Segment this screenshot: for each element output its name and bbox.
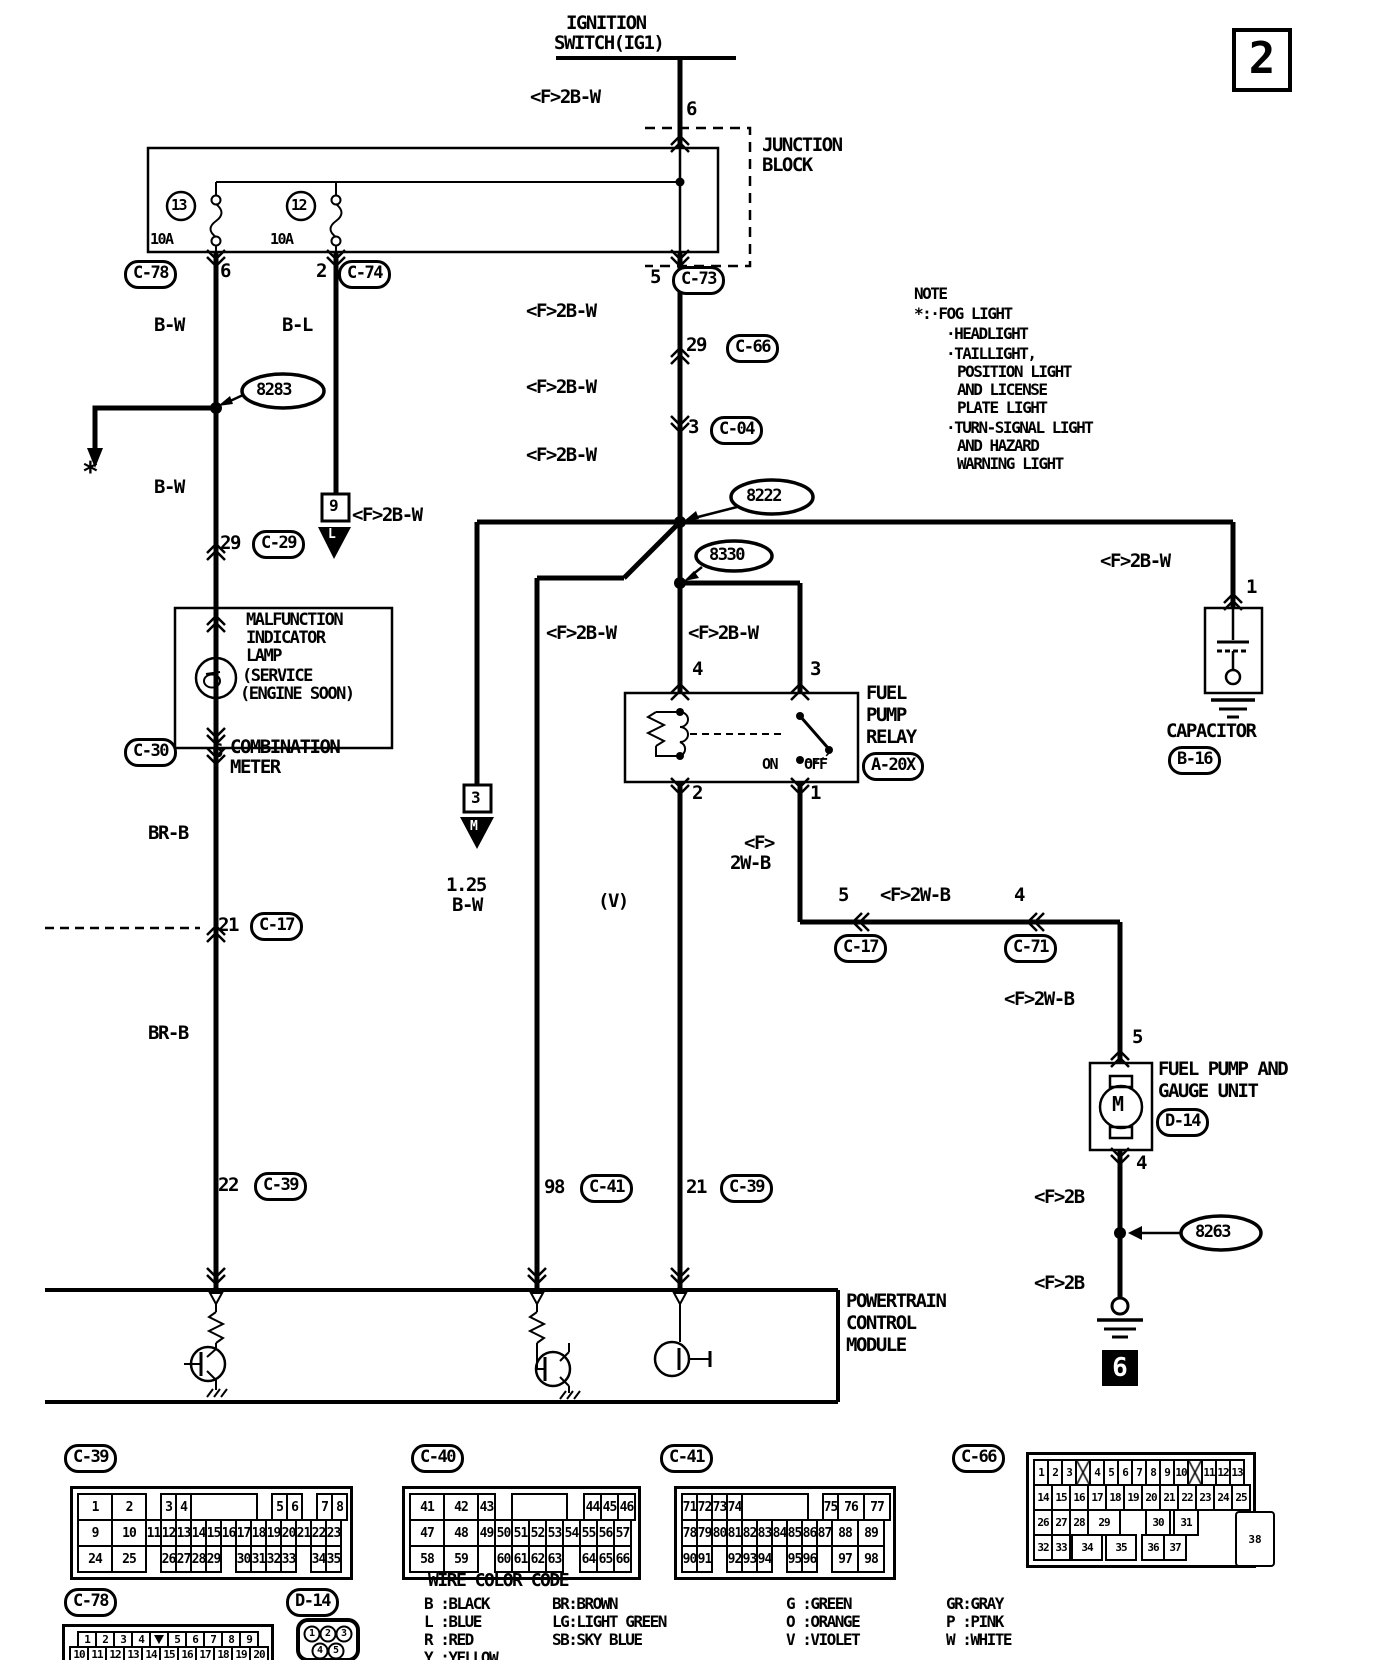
- connector-pill-c71: C-71: [1004, 934, 1057, 963]
- label-pin6_top: 6: [686, 100, 696, 119]
- pin-cell: [190, 1493, 258, 1521]
- label-p1cap: 1: [1246, 578, 1256, 597]
- pin-cell: [741, 1493, 809, 1521]
- label-t9: L: [328, 528, 334, 541]
- pin-cell: 20: [1141, 1484, 1161, 1511]
- connector-pill-btc40: C-40: [411, 1444, 464, 1473]
- label-wcc_lg: LG:LIGHT GREEN: [552, 1614, 666, 1630]
- fuel-pump-relay: [625, 684, 858, 794]
- pin-cell: 2: [111, 1493, 147, 1521]
- label-note9: WARNING LIGHT: [957, 456, 1063, 472]
- pin-cell: 36: [1141, 1534, 1165, 1561]
- label-bw1: B-W: [154, 316, 184, 335]
- label-p3c04: 3: [688, 418, 698, 437]
- wire-relay-pin1: [800, 782, 1129, 1067]
- pin-cell: 10: [111, 1519, 147, 1547]
- label-wcct: WIRE COLOR CODE: [428, 1572, 568, 1590]
- label-off: OFF: [804, 757, 827, 772]
- pin-cell: 11: [87, 1646, 107, 1660]
- label-p29c29: 29: [220, 534, 240, 553]
- label-wcc_br: BR:BROWN: [552, 1596, 617, 1612]
- label-p5d14: 5: [1132, 1028, 1142, 1047]
- connector-pill-d14: D-14: [1156, 1108, 1209, 1137]
- pin-cell: 89: [857, 1519, 885, 1547]
- label-fp2: GAUGE UNIT: [1158, 1082, 1257, 1101]
- connector-pill-c17L: C-17: [250, 912, 303, 941]
- pin-cell: 1: [77, 1493, 113, 1521]
- connector-table-c39: 1234567891011121314151617181920212223242…: [70, 1486, 353, 1580]
- label-b125a: 1.25: [446, 876, 486, 895]
- label-b125b: B-W: [452, 896, 482, 915]
- pin-cell: 21: [1159, 1484, 1179, 1511]
- offpage-triangle-M: [460, 817, 494, 849]
- wiring-diagram-page: 2 6 IGNITIONSWITCH(IG1)<F>2B-W6JUNCTIONB…: [0, 0, 1392, 1660]
- pin-cell: 66: [613, 1545, 632, 1573]
- label-wcc_w: W :WHITE: [946, 1632, 1011, 1648]
- connector-table-c40: 4142434445464748495051525354555657585960…: [402, 1486, 641, 1580]
- fuse-12: [287, 182, 342, 252]
- connector-pill-c73: C-73: [672, 266, 725, 295]
- label-p6c30: 6: [212, 742, 222, 761]
- connector-pill-c39L: C-39: [254, 1172, 307, 1201]
- label-brb1: BR-B: [148, 824, 188, 843]
- pin-cell: 59: [443, 1545, 479, 1573]
- pcm-circuit-a: [184, 1304, 227, 1397]
- pin-cell: 10: [69, 1646, 89, 1660]
- label-p2rel: 2: [692, 784, 702, 803]
- pin-cell: 17: [1087, 1484, 1107, 1511]
- label-wcc_o: O :ORANGE: [786, 1614, 859, 1630]
- label-p4rel: 4: [692, 660, 702, 679]
- fuse-13: [167, 182, 222, 252]
- label-pcm3: MODULE: [846, 1336, 906, 1355]
- label-fpr2: PUMP: [866, 706, 906, 725]
- pcm-circuit-c: [655, 1304, 710, 1376]
- pin-cell: 47: [409, 1519, 445, 1547]
- label-wcc_sb: SB:SKY BLUE: [552, 1632, 641, 1648]
- label-star: *: [82, 458, 97, 486]
- label-pcm1: POWERTRAIN: [846, 1292, 945, 1311]
- pin-cell: 57: [613, 1519, 632, 1547]
- label-wcc_gr: GR:GRAY: [946, 1596, 1003, 1612]
- label-vlab: (V): [598, 892, 628, 911]
- connector-pill-btc78: C-78: [64, 1588, 117, 1617]
- page-number-badge: 2: [1232, 28, 1292, 92]
- pin-cell: 33: [1051, 1534, 1071, 1561]
- label-cm1: COMBINATION: [230, 738, 339, 757]
- pin-cell: 12: [105, 1646, 125, 1660]
- label-p98c41: 98: [544, 1178, 564, 1197]
- connector-pill-btc41: C-41: [660, 1444, 713, 1473]
- label-d14p2: 2: [325, 1629, 330, 1639]
- connector-table-c66: 1234567891011121314151617181920212223242…: [1026, 1452, 1256, 1568]
- label-jb1: JUNCTION: [762, 136, 842, 155]
- pin-cell: 35: [325, 1545, 342, 1573]
- pin-cell: 22: [1177, 1484, 1197, 1511]
- label-mil3: LAMP: [246, 648, 281, 665]
- label-s8283: 8283: [256, 382, 291, 399]
- pin-cell: 13: [1229, 1459, 1245, 1486]
- pin-cell: 88: [831, 1519, 859, 1547]
- connector-pill-c66: C-66: [726, 334, 779, 363]
- label-wcc_l: L :BLUE: [424, 1614, 481, 1630]
- label-f2b2: <F>2B: [1034, 1274, 1084, 1293]
- label-p5c17: 5: [838, 886, 848, 905]
- label-s8263: 8263: [1195, 1224, 1230, 1241]
- label-cm2: METER: [230, 758, 280, 777]
- pin-cell: 97: [831, 1545, 859, 1573]
- pin-cell: 98: [857, 1545, 885, 1573]
- label-ign1: IGNITION: [566, 14, 646, 33]
- label-f2b1: <F>2B: [1034, 1188, 1084, 1207]
- pin-cell: 9: [77, 1519, 113, 1547]
- pin-gap: [1119, 1509, 1147, 1536]
- label-p6c78: 6: [220, 262, 230, 281]
- label-note7: ·TURN-SIGNAL LIGHT: [946, 420, 1092, 436]
- connector-pill-c29: C-29: [252, 530, 305, 559]
- relay-switch-arm: [800, 716, 828, 748]
- label-bl: B-L: [282, 316, 312, 335]
- label-note4: POSITION LIGHT: [957, 364, 1071, 380]
- label-f2wbh: <F>2W-B: [880, 886, 950, 905]
- pin-cell: 24: [77, 1545, 113, 1573]
- pin-cell: 24: [1213, 1484, 1233, 1511]
- pin-cell: 15: [159, 1646, 179, 1660]
- connector-pill-b16: B-16: [1168, 746, 1221, 775]
- label-wcc_b: B :BLACK: [424, 1596, 489, 1612]
- connector-table-c41: 7172737475767778798081828384858687888990…: [674, 1486, 896, 1580]
- label-f2bw_top: <F>2B-W: [530, 88, 600, 107]
- ground-ref-badge: 6: [1102, 1350, 1138, 1386]
- label-note0: NOTE: [914, 286, 947, 302]
- connector-d14-face: [298, 1620, 358, 1660]
- label-mil4: (SERVICE: [242, 668, 312, 685]
- pin-cell: 28: [1069, 1509, 1089, 1536]
- junction-block: [148, 128, 750, 266]
- connector-pill-c04: C-04: [710, 416, 763, 445]
- label-note3: ·TAILLIGHT,: [946, 346, 1035, 362]
- label-a13: 10A: [150, 232, 173, 247]
- wire-middle-column: [460, 252, 1233, 1290]
- pin-cell: 18: [1105, 1484, 1125, 1511]
- label-cap1: CAPACITOR: [1166, 722, 1255, 741]
- label-d14p5: 5: [333, 1646, 338, 1656]
- label-s8330: 8330: [709, 547, 744, 564]
- relay-resistor: [648, 712, 680, 756]
- connector-pill-c39m: C-39: [720, 1174, 773, 1203]
- pcm-box: [45, 1268, 838, 1402]
- label-wbst: 2W-B: [730, 854, 770, 873]
- pin-cell: 30: [1145, 1509, 1171, 1536]
- ground-icon: [1112, 1298, 1128, 1314]
- connector-table-c78b: 1234567891011121314151617181920: [62, 1624, 274, 1660]
- pin-cell: 77: [863, 1493, 891, 1521]
- label-d14p4: 4: [317, 1646, 322, 1656]
- pcm-circuit-b: [530, 1304, 580, 1399]
- label-wcc_g: G :GREEN: [786, 1596, 851, 1612]
- label-d14p1: 1: [309, 1629, 314, 1639]
- label-b9: 9: [329, 498, 337, 514]
- pin-cell: [511, 1493, 568, 1521]
- label-fst: <F>: [744, 834, 774, 853]
- label-fpr1: FUEL: [866, 684, 906, 703]
- connector-pill-a20x: A-20X: [862, 752, 924, 781]
- keyway-triangle-icon: [154, 1635, 164, 1644]
- wire-left-column: [45, 252, 324, 1290]
- label-mil1: MALFUNCTION: [246, 612, 342, 629]
- label-p4d14: 4: [1136, 1154, 1146, 1173]
- pin-cell: 31: [1173, 1509, 1199, 1536]
- label-p22c39: 22: [218, 1176, 238, 1195]
- label-f2bwm2: <F>2B-W: [526, 378, 596, 397]
- connector-pill-c41m: C-41: [580, 1174, 633, 1203]
- label-note8: AND HAZARD: [957, 438, 1038, 454]
- label-p21c39: 21: [686, 1178, 706, 1197]
- label-f2wbv: <F>2W-B: [1004, 990, 1074, 1009]
- label-mil2: INDICATOR: [246, 630, 325, 647]
- label-note6: PLATE LIGHT: [957, 400, 1046, 416]
- pin-cell: 14: [141, 1646, 161, 1660]
- label-fp1: FUEL PUMP AND: [1158, 1060, 1287, 1079]
- pin-cell: 26: [1033, 1509, 1053, 1536]
- label-wcc_r: R :RED: [424, 1632, 473, 1648]
- pin-cell: 48: [443, 1519, 479, 1547]
- label-pcm2: CONTROL: [846, 1314, 916, 1333]
- connector-pill-c74: C-74: [338, 260, 391, 289]
- pin-cell: 46: [617, 1493, 636, 1521]
- label-f2bwL: <F>2B-W: [352, 506, 422, 525]
- label-f2bwcap: <F>2B-W: [1100, 552, 1170, 571]
- pin-cell: 25: [1231, 1484, 1251, 1511]
- label-note1: *:·FOG LIGHT: [914, 306, 1012, 322]
- connector-pill-c78t: C-78: [124, 260, 177, 289]
- label-b3: 3: [471, 790, 479, 806]
- label-f2bwr3: <F>2B-W: [688, 624, 758, 643]
- label-f2bwm3: <F>2B-W: [526, 446, 596, 465]
- pin-cell: 18: [213, 1646, 233, 1660]
- pin-cell: 16: [1069, 1484, 1089, 1511]
- label-t3: M: [470, 820, 476, 833]
- label-fpr3: RELAY: [866, 728, 916, 747]
- label-note5: AND LICENSE: [957, 382, 1046, 398]
- label-p3rel: 3: [810, 660, 820, 679]
- label-wcc_v: V :VIOLET: [786, 1632, 859, 1648]
- pin-cell: 25: [111, 1545, 147, 1573]
- label-wcc_p: P :PINK: [946, 1614, 1003, 1630]
- pin-cell: 29: [1087, 1509, 1121, 1536]
- pin-cell: 19: [231, 1646, 251, 1660]
- label-p21c17: 21: [218, 916, 238, 935]
- label-p5c73: 5: [650, 268, 660, 287]
- pin-cell: 35: [1105, 1534, 1137, 1561]
- connector-pill-btc66: C-66: [952, 1444, 1005, 1473]
- capacitor-symbol: [1205, 522, 1262, 717]
- offpage-triangle-L: [318, 527, 351, 559]
- label-brb2: BR-B: [148, 1024, 188, 1043]
- label-s8222: 8222: [746, 488, 781, 505]
- pin-cell: 23: [325, 1519, 342, 1547]
- pin-cell: 20: [249, 1646, 269, 1660]
- pin-cell: 15: [1051, 1484, 1071, 1511]
- pin-cell: 17: [195, 1646, 215, 1660]
- label-bw2: B-W: [154, 478, 184, 497]
- connector-pill-btc39: C-39: [64, 1444, 117, 1473]
- label-wcc_y: Y :YELLOW: [424, 1650, 497, 1660]
- pin-cell: 32: [1033, 1534, 1053, 1561]
- label-a12: 10A: [270, 232, 293, 247]
- label-f2bwr4: <F>2B-W: [546, 624, 616, 643]
- label-d14p3: 3: [341, 1629, 346, 1639]
- label-p29c66: 29: [686, 336, 706, 355]
- relay-coil: [680, 712, 688, 756]
- pin-cell: 13: [123, 1646, 143, 1660]
- label-on: ON: [762, 757, 777, 772]
- label-p4c71: 4: [1014, 886, 1024, 905]
- wiring-diagram-svg: [0, 0, 1392, 1660]
- pin-cell: 41: [409, 1493, 445, 1521]
- label-p2c74: 2: [316, 262, 326, 281]
- connector-pill-btd14: D-14: [286, 1588, 339, 1617]
- label-mot: M: [1112, 1094, 1123, 1114]
- label-f13: 13: [171, 198, 186, 213]
- label-ign2: SWITCH(IG1): [554, 34, 663, 53]
- pin-cell: 14: [1033, 1484, 1053, 1511]
- pin-cell: 58: [409, 1545, 445, 1573]
- pin-cell: 27: [1051, 1509, 1071, 1536]
- pin-cell: 34: [1071, 1534, 1103, 1561]
- pin-cell: 19: [1123, 1484, 1143, 1511]
- label-f2bwm1: <F>2B-W: [526, 302, 596, 321]
- pin-cell: 42: [443, 1493, 479, 1521]
- label-f12: 12: [291, 198, 306, 213]
- pin-cell: 8: [331, 1493, 348, 1521]
- label-jb2: BLOCK: [762, 156, 812, 175]
- pin-cell-large: 38: [1235, 1511, 1275, 1567]
- connector-pill-c17R: C-17: [834, 934, 887, 963]
- pin-cell: 76: [837, 1493, 865, 1521]
- pin-cell: 16: [177, 1646, 197, 1660]
- pin-cell: 23: [1195, 1484, 1215, 1511]
- label-p1rel: 1: [810, 784, 820, 803]
- connector-pill-c30: C-30: [124, 738, 177, 767]
- pin-cell: 37: [1163, 1534, 1187, 1561]
- label-note2: ·HEADLIGHT: [946, 326, 1027, 342]
- label-mil5: (ENGINE SOON): [240, 686, 354, 703]
